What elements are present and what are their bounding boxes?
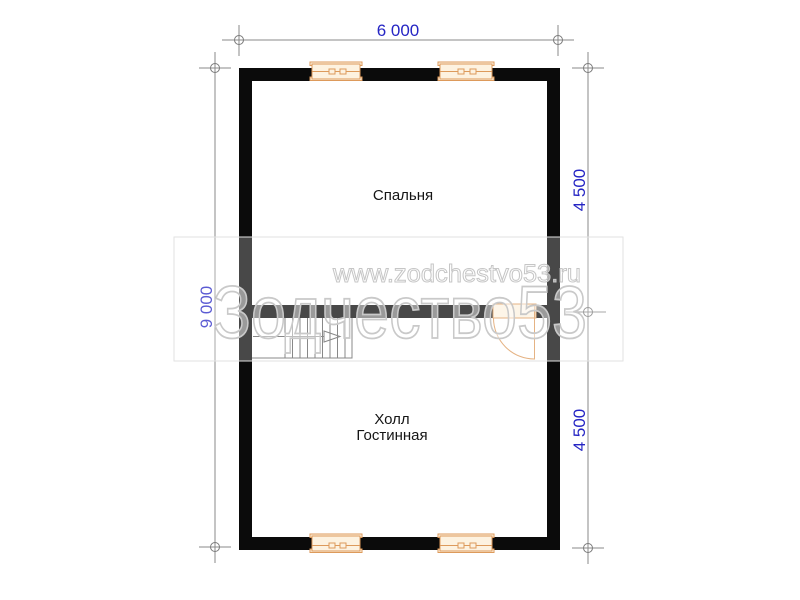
- window-icon: [310, 534, 362, 553]
- dimension-line-top: 6 000: [222, 21, 574, 56]
- watermark: www.zodchestvo53.ru Зодчество53: [174, 237, 623, 361]
- room-label-hall: Холл: [374, 411, 409, 428]
- window-icon: [438, 534, 494, 553]
- room-label-bedroom: Спальня: [373, 187, 433, 204]
- watermark-brand: Зодчество53: [213, 271, 587, 354]
- dim-top-label: 6 000: [377, 21, 420, 40]
- dim-right-bottom-label: 4 500: [570, 409, 589, 452]
- window-icon: [438, 62, 494, 81]
- room-label-livingroom: Гостинная: [356, 427, 427, 444]
- dim-right-top-label: 4 500: [570, 169, 589, 212]
- window-icon: [310, 62, 362, 81]
- floor-plan: 6 000 9 000 4 500 4 500: [0, 0, 800, 600]
